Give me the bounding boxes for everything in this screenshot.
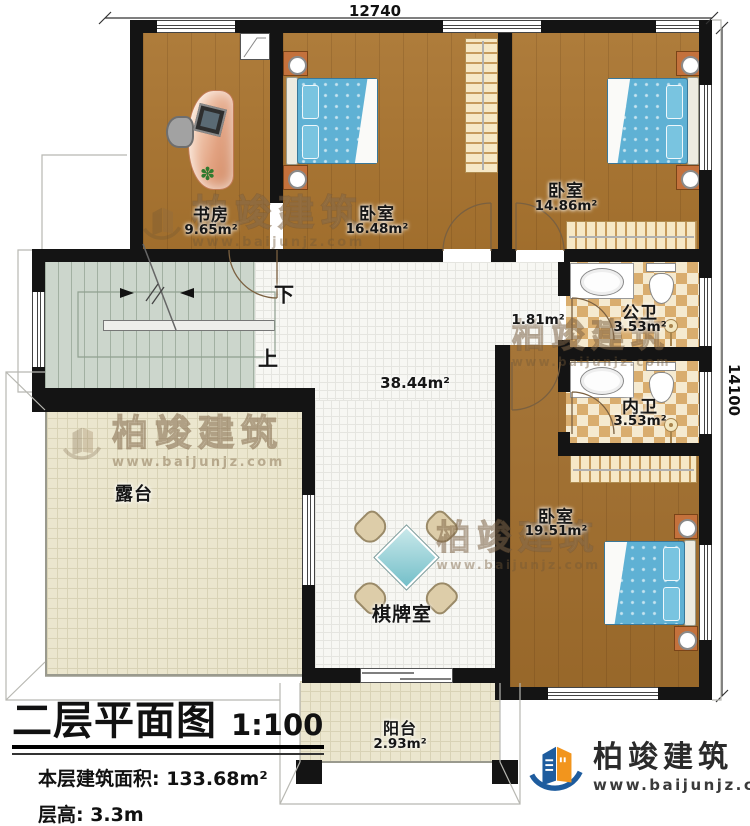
plant-icon: ✽ [200, 166, 215, 184]
bed-icon [607, 78, 688, 164]
wall [699, 346, 712, 372]
nightstand-icon [676, 51, 701, 76]
wall [558, 340, 570, 347]
office-chair-icon [166, 116, 194, 148]
sink-icon [580, 268, 624, 296]
wardrobe-icon [465, 38, 498, 173]
window-icon [302, 495, 315, 585]
flue-niche [240, 33, 270, 60]
wall [32, 249, 130, 262]
wall [558, 432, 570, 443]
wall [558, 262, 570, 296]
wall [699, 170, 712, 278]
stairs-down-label: 下 [274, 279, 294, 308]
wall [130, 249, 443, 262]
chess-room-label: 棋牌室 [372, 600, 432, 627]
wall [302, 585, 315, 672]
inner-bath-area: 3.53m² [613, 413, 666, 429]
floor-height-text: 层高: 3.3m [38, 800, 324, 826]
wall [564, 249, 712, 262]
wall [32, 388, 315, 412]
plan-title: 二层平面图 [12, 700, 217, 742]
bedroom-right-area: 14.86m² [535, 198, 598, 214]
title-block: 二层平面图 1:100 本层建筑面积: 133.68m² 层高: 3.3m [12, 700, 324, 826]
title-underline [12, 753, 324, 755]
nightstand-icon [676, 165, 701, 190]
bed-icon [604, 541, 685, 625]
brand-url: www.baijunjz.com [593, 776, 750, 794]
window-icon [32, 292, 45, 367]
bed-icon [297, 78, 378, 164]
wall [558, 347, 712, 361]
wall [32, 262, 45, 292]
balcony-pier [492, 760, 518, 784]
brand-name: 柏竣建筑 [593, 742, 750, 774]
terrace-floor [45, 408, 303, 676]
wall [270, 33, 283, 203]
brand-logo-block: 柏竣建筑 www.baijunjz.com [527, 737, 750, 799]
wall [495, 345, 510, 700]
wall [558, 443, 712, 456]
plan-scale: 1:100 [231, 709, 323, 742]
floor-plan-canvas: ✽ [0, 0, 750, 826]
hall-area: 38.44m² [380, 374, 450, 392]
wall [699, 640, 712, 700]
dimension-right: 14100 [725, 364, 743, 416]
window-icon [548, 687, 658, 700]
closet-icon [566, 221, 697, 250]
stairs-up-label: 上 [258, 343, 278, 372]
bedroom-bottom-area: 19.51m² [525, 523, 588, 539]
wall [699, 434, 712, 545]
toilet-tank [646, 263, 676, 272]
sink-icon [580, 367, 624, 395]
study-area: 9.65m² [184, 222, 237, 238]
wall [498, 33, 512, 249]
nightstand-icon [674, 626, 698, 651]
bedroom-top-area: 16.48m² [346, 221, 409, 237]
closet-icon [570, 455, 697, 483]
dimension-top: 12740 [349, 2, 401, 20]
bed-headboard [687, 77, 699, 165]
brand-logo-icon [527, 737, 585, 799]
window-icon [699, 278, 712, 346]
title-row: 二层平面图 1:100 [12, 700, 324, 749]
wall [302, 668, 360, 683]
wall [302, 408, 315, 495]
toilet-tank [646, 362, 676, 371]
nightstand-icon [283, 165, 308, 190]
wall [699, 20, 712, 85]
window-icon [699, 372, 712, 434]
window-icon [443, 20, 541, 33]
window-icon [656, 20, 699, 33]
bed-headboard [684, 540, 696, 626]
window-icon [157, 20, 235, 33]
terrace-label: 露台 [115, 480, 153, 506]
nightstand-icon [283, 51, 308, 76]
wall [491, 249, 516, 262]
wall [130, 33, 143, 249]
wall [558, 361, 570, 392]
sliding-door-icon [360, 668, 453, 683]
balcony-area: 2.93m² [373, 736, 426, 752]
shower-stem [670, 333, 672, 346]
wall [495, 687, 548, 700]
corridor-area: 1.81m² [511, 312, 564, 328]
floor-area-text: 本层建筑面积: 133.68m² [38, 764, 324, 791]
nightstand-icon [674, 514, 698, 539]
window-icon [699, 545, 712, 640]
public-bath-area: 3.53m² [613, 319, 666, 335]
window-icon [699, 85, 712, 170]
stair-handrail [103, 320, 275, 331]
